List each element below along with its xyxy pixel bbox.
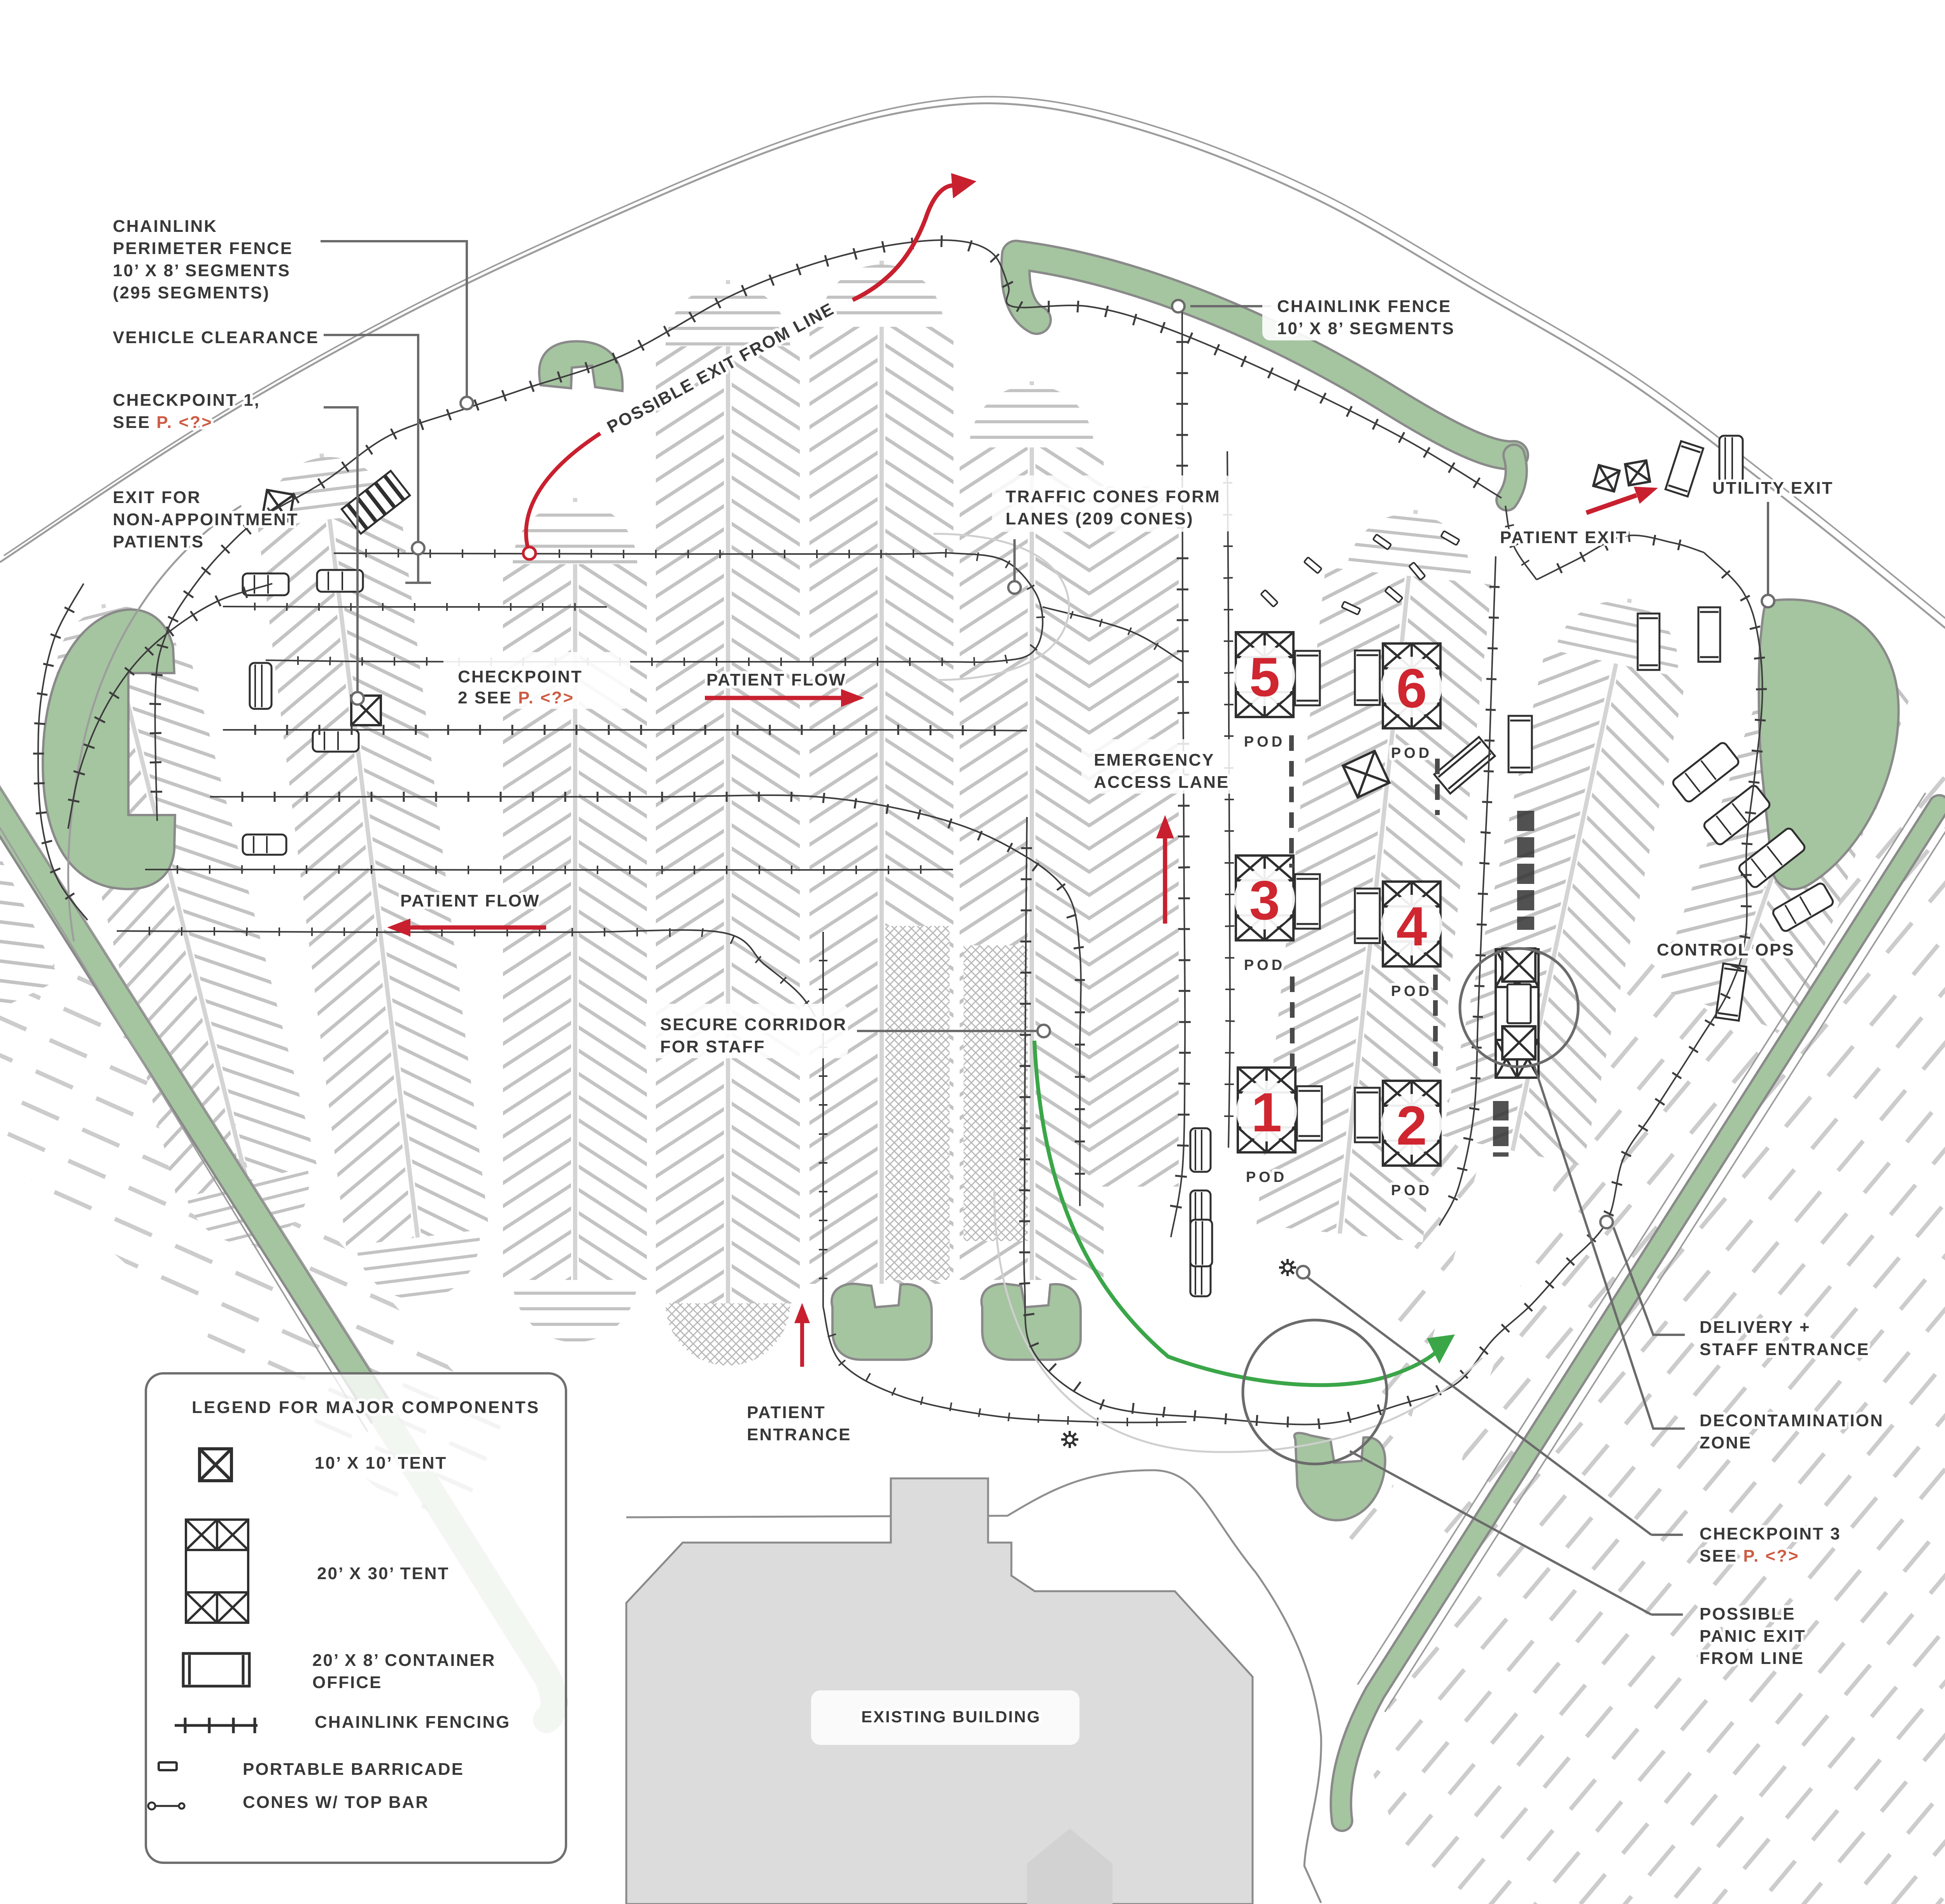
svg-text:CHAINLINK FENCE: CHAINLINK FENCE — [1277, 297, 1451, 316]
svg-text:PATIENT EXIT: PATIENT EXIT — [1500, 528, 1628, 547]
svg-text:6: 6 — [1397, 657, 1427, 719]
svg-text:POD: POD — [1391, 983, 1432, 999]
svg-text:FROM LINE: FROM LINE — [1700, 1649, 1804, 1668]
svg-text:POD: POD — [1391, 1182, 1432, 1199]
svg-text:EMERGENCY: EMERGENCY — [1094, 750, 1215, 770]
svg-text:2 SEE P. <?>: 2 SEE P. <?> — [458, 688, 574, 707]
svg-text:PORTABLE BARRICADE: PORTABLE BARRICADE — [243, 1760, 464, 1779]
svg-text:POD: POD — [1391, 745, 1432, 761]
svg-text:10’ X 8’ SEGMENTS: 10’ X 8’ SEGMENTS — [1277, 319, 1455, 338]
svg-text:ACCESS LANE: ACCESS LANE — [1094, 773, 1229, 792]
svg-text:1: 1 — [1251, 1082, 1282, 1143]
svg-text:CHECKPOINT: CHECKPOINT — [458, 667, 583, 686]
svg-text:LEGEND FOR MAJOR COMPONENTS: LEGEND FOR MAJOR COMPONENTS — [192, 1398, 540, 1417]
svg-text:FOR STAFF: FOR STAFF — [660, 1037, 766, 1056]
svg-text:2: 2 — [1397, 1095, 1427, 1157]
svg-text:UTILITY EXIT: UTILITY EXIT — [1712, 479, 1833, 498]
svg-text:CHECKPOINT 3: CHECKPOINT 3 — [1700, 1524, 1841, 1543]
svg-text:ZONE: ZONE — [1700, 1433, 1752, 1452]
svg-text:PATIENT FLOW: PATIENT FLOW — [706, 670, 846, 689]
svg-text:POD: POD — [1244, 957, 1285, 973]
svg-text:NON-APPOINTMENT: NON-APPOINTMENT — [113, 510, 299, 529]
svg-text:EXISTING BUILDING: EXISTING BUILDING — [861, 1708, 1041, 1726]
svg-text:PANIC EXIT: PANIC EXIT — [1700, 1627, 1806, 1646]
svg-text:SEE P. <?>: SEE P. <?> — [1700, 1546, 1800, 1566]
svg-text:LANES (209 CONES): LANES (209 CONES) — [1006, 509, 1194, 528]
svg-text:POSSIBLE: POSSIBLE — [1700, 1604, 1796, 1623]
svg-text:PATIENT: PATIENT — [747, 1403, 826, 1422]
svg-text:5: 5 — [1249, 646, 1280, 708]
svg-text:CHECKPOINT 1,: CHECKPOINT 1, — [113, 391, 260, 410]
svg-text:4: 4 — [1397, 896, 1427, 957]
svg-text:OFFICE: OFFICE — [312, 1673, 382, 1692]
svg-text:PATIENTS: PATIENTS — [113, 532, 204, 551]
svg-text:SECURE CORRIDOR: SECURE CORRIDOR — [660, 1015, 847, 1034]
svg-text:TRAFFIC CONES FORM: TRAFFIC CONES FORM — [1006, 487, 1221, 506]
svg-text:CHAINLINK: CHAINLINK — [113, 217, 217, 236]
svg-text:(295 SEGMENTS): (295 SEGMENTS) — [113, 283, 270, 302]
svg-text:POD: POD — [1246, 1169, 1287, 1185]
svg-text:EXIT FOR: EXIT FOR — [113, 488, 201, 507]
svg-text:CONTROL OPS: CONTROL OPS — [1657, 940, 1795, 959]
svg-text:20’ X 8’ CONTAINER: 20’ X 8’ CONTAINER — [312, 1651, 496, 1670]
svg-text:DECONTAMINATION: DECONTAMINATION — [1700, 1411, 1884, 1430]
svg-text:POD: POD — [1244, 734, 1285, 750]
svg-text:10’ X 8’ SEGMENTS: 10’ X 8’ SEGMENTS — [113, 261, 291, 280]
svg-text:3: 3 — [1249, 870, 1280, 931]
svg-text:CONES W/ TOP BAR: CONES W/ TOP BAR — [243, 1793, 429, 1812]
svg-text:10’ X 10’ TENT: 10’ X 10’ TENT — [315, 1453, 447, 1473]
svg-text:SEE P. <?>: SEE P. <?> — [113, 413, 213, 432]
svg-text:PERIMETER FENCE: PERIMETER FENCE — [113, 239, 293, 258]
svg-text:VEHICLE CLEARANCE: VEHICLE CLEARANCE — [113, 328, 319, 347]
svg-text:PATIENT FLOW: PATIENT FLOW — [400, 891, 540, 910]
svg-text:ENTRANCE: ENTRANCE — [747, 1425, 851, 1444]
svg-text:STAFF ENTRANCE: STAFF ENTRANCE — [1700, 1340, 1870, 1359]
svg-text:20’ X 30’ TENT: 20’ X 30’ TENT — [317, 1564, 449, 1583]
svg-text:DELIVERY +: DELIVERY + — [1700, 1318, 1811, 1337]
svg-text:CHAINLINK FENCING: CHAINLINK FENCING — [315, 1713, 510, 1732]
